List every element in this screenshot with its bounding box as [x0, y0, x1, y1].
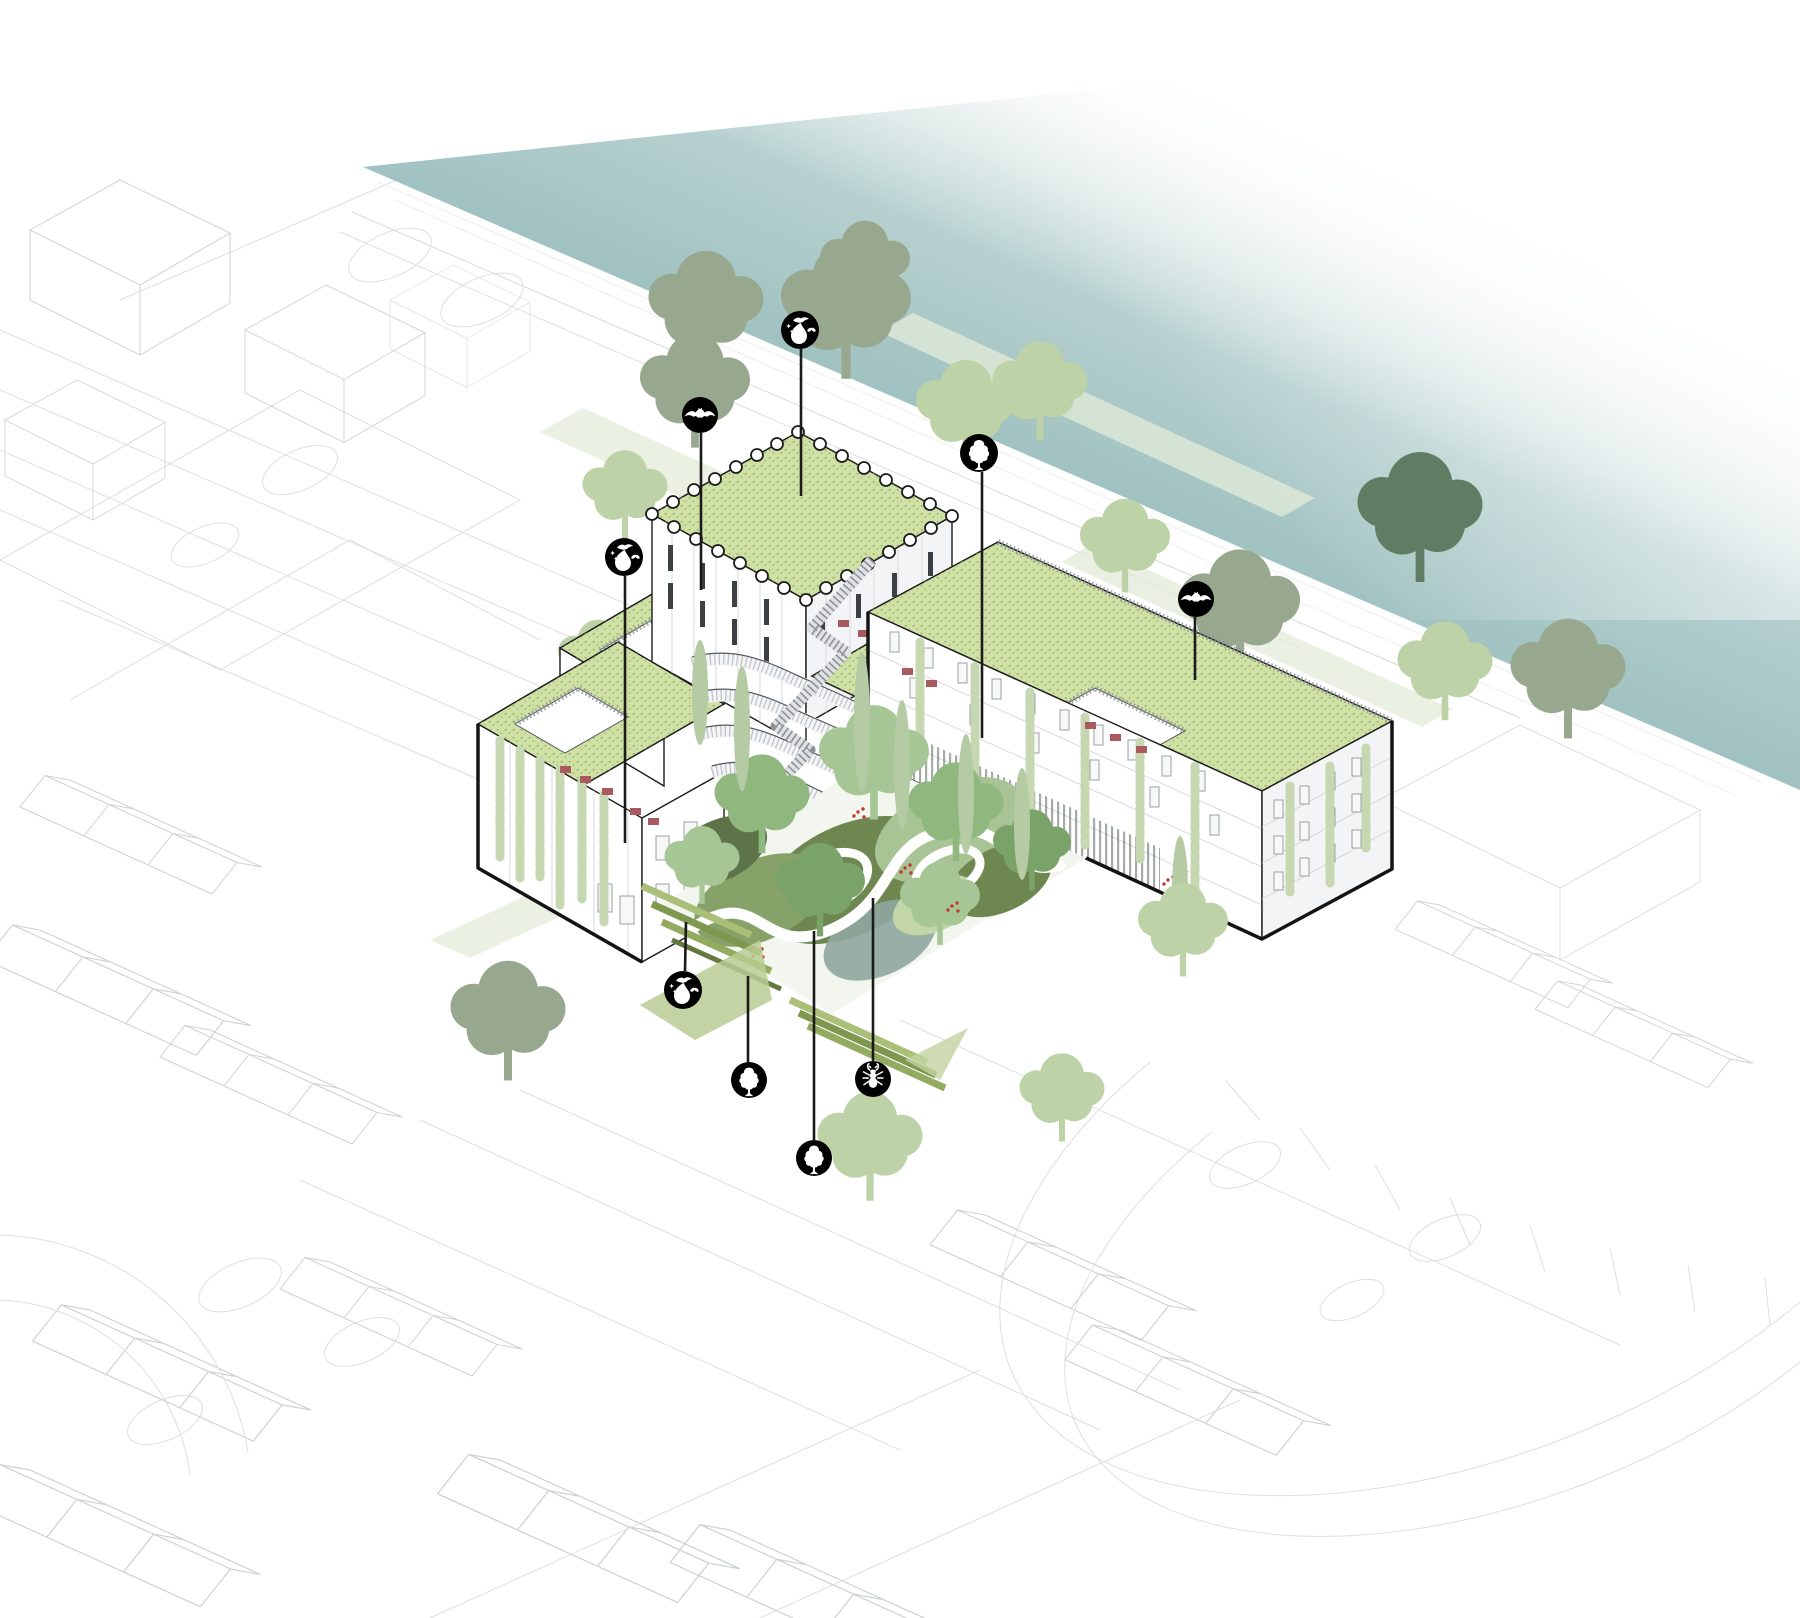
garden-bird-habitat-icon [664, 971, 702, 1009]
bat-habitat-icon [682, 397, 718, 433]
roof-tree-icon [960, 434, 998, 472]
street-bat-habitat-icon [1178, 581, 1214, 617]
small-tree-icon [796, 1140, 832, 1176]
bird-habitat-icon [781, 311, 819, 349]
annotation-icons [605, 311, 1214, 1176]
annotation-layer [0, 0, 1800, 1618]
garden-bird-habitat-icon-leader-line [685, 922, 686, 971]
terrace-bird-habitat-icon [605, 538, 643, 576]
site-plan-illustration [0, 0, 1800, 1618]
leader-lines [625, 349, 1195, 1140]
insect-habitat-icon [855, 1061, 891, 1097]
garden-tree-icon [731, 1062, 767, 1098]
